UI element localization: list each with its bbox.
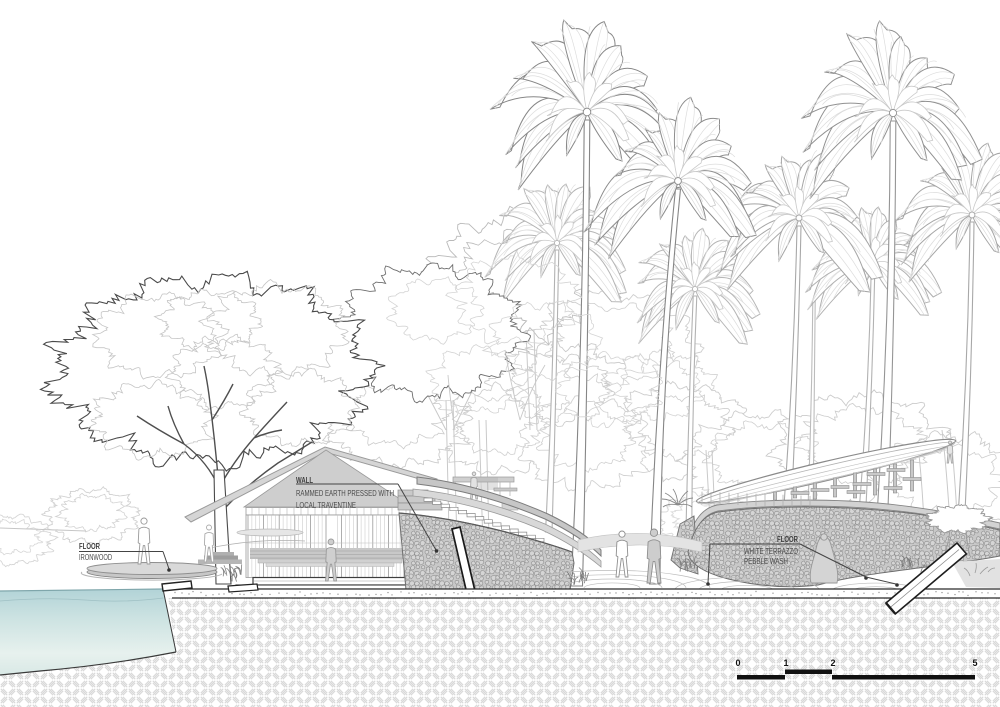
- svg-text:IRONWOOD: IRONWOOD: [79, 552, 112, 562]
- svg-text:5: 5: [972, 658, 977, 668]
- svg-text:FLOOR: FLOOR: [777, 534, 799, 544]
- svg-text:LOCAL TRAVENTINE: LOCAL TRAVENTINE: [296, 500, 356, 510]
- svg-text:PEBBLE WASH: PEBBLE WASH: [744, 556, 788, 566]
- svg-text:WHITE TERRAZZO: WHITE TERRAZZO: [744, 546, 798, 556]
- svg-text:FLOOR: FLOOR: [79, 541, 101, 551]
- svg-text:0: 0: [735, 658, 740, 668]
- svg-text:RAMMED EARTH PRESSED WITH: RAMMED EARTH PRESSED WITH: [296, 488, 394, 498]
- svg-text:2: 2: [830, 658, 835, 668]
- svg-text:1: 1: [783, 658, 788, 668]
